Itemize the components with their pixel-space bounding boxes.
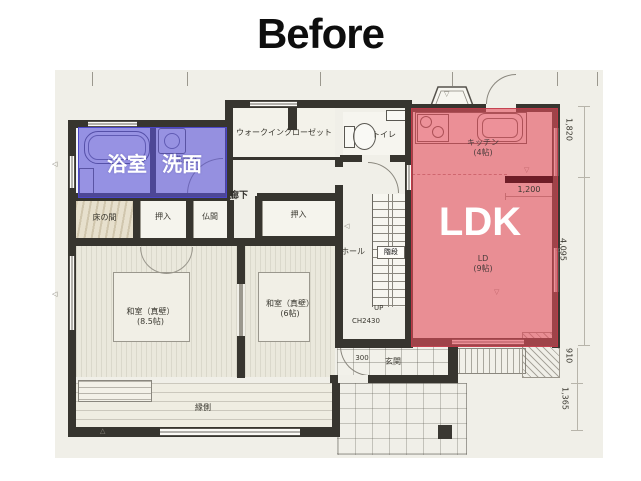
- dim-tick: [571, 383, 583, 384]
- dim-910: 910: [564, 348, 574, 363]
- grid-tick: [597, 72, 598, 86]
- window: [69, 256, 75, 330]
- dim-line: [577, 348, 578, 430]
- window: [160, 428, 300, 436]
- porch-tiles: [337, 383, 467, 455]
- label-kitchen-line2: (4帖): [455, 148, 511, 158]
- wall: [186, 200, 193, 240]
- wall: [68, 238, 343, 246]
- dim-tick: [578, 106, 590, 107]
- entry-opening: [338, 375, 368, 383]
- grid-tick: [557, 72, 558, 86]
- wall: [332, 383, 340, 437]
- label-ld: LD (9帖): [458, 254, 508, 273]
- dim-1365: 1,365: [560, 387, 570, 410]
- garden-step: [452, 348, 526, 374]
- label-dim-300: 300: [350, 354, 374, 362]
- wall-stub-dark-red: [505, 176, 553, 183]
- label-kitchen-line1: キッチン: [455, 138, 511, 148]
- marker-left-icon: ◁: [344, 222, 349, 230]
- porch-post: [438, 425, 452, 439]
- window: [250, 101, 297, 107]
- wall: [133, 200, 140, 240]
- grid-tick: [92, 72, 93, 86]
- label-washitsu-a: 和室（真壁） (8.5帖): [113, 307, 188, 326]
- engawa-step: [78, 380, 152, 402]
- page-title: Before: [0, 10, 641, 58]
- wall: [255, 196, 262, 241]
- fusuma-opening: [237, 284, 245, 336]
- label-up: UP: [374, 304, 383, 312]
- label-genkan: 玄関: [376, 357, 410, 367]
- grid-tick: [187, 72, 188, 86]
- overlay-ldk-label: LDK: [415, 200, 545, 245]
- dim-4095: 4,095: [558, 238, 568, 261]
- wall: [225, 157, 343, 160]
- label-washitsu-a-line1: 和室（真壁）: [113, 307, 188, 317]
- dim-line: [584, 106, 585, 346]
- overlay-wash-label: 洗面: [155, 148, 209, 177]
- page: Before: [0, 0, 641, 481]
- marker-left-icon: ◁: [52, 160, 57, 168]
- marker-left-icon: ◁: [52, 290, 57, 298]
- wall: [227, 200, 234, 240]
- overlay-bath-label: 浴室: [100, 148, 154, 177]
- label-washitsu-b-line1: 和室（真壁）: [245, 299, 335, 309]
- label-ld-line2: (9帖): [458, 264, 508, 274]
- dim-1820: 1,820: [564, 118, 574, 141]
- label-oshiire-b: 押入: [262, 210, 335, 220]
- label-washitsu-b: 和室（真壁） (6帖): [245, 299, 335, 318]
- label-washitsu-a-line2: (8.5帖): [113, 317, 188, 327]
- wall: [335, 339, 413, 348]
- door-opening: [362, 155, 390, 162]
- wall: [257, 193, 343, 201]
- grid-tick: [320, 72, 321, 86]
- marker-down-icon: ▽: [444, 90, 449, 98]
- label-toilet: トイレ: [364, 130, 404, 140]
- marker-up-icon: △: [100, 427, 105, 435]
- label-hall: ホール: [335, 247, 371, 257]
- label-oshiire-a: 押入: [140, 212, 186, 222]
- door-opening: [335, 167, 343, 185]
- label-butsuma: 仏間: [193, 212, 227, 222]
- dim-1200: 1,200: [506, 185, 552, 195]
- dim-tick: [578, 345, 590, 346]
- dim-tick: [571, 430, 583, 431]
- label-washitsu-b-line2: (6帖): [245, 309, 335, 319]
- dim-tick: [578, 177, 590, 178]
- window: [69, 156, 75, 188]
- label-wic: ウォークインクローゼット: [233, 128, 335, 138]
- label-tokonoma: 床の間: [76, 213, 133, 223]
- label-engawa: 縁側: [180, 403, 226, 413]
- label-stairs: 階段: [377, 246, 405, 259]
- label-hallway: 廊下: [230, 191, 248, 202]
- wall: [288, 108, 297, 130]
- label-kitchen: キッチン (4帖): [455, 138, 511, 157]
- label-ceiling-height: CH2430: [352, 317, 380, 325]
- label-ld-line1: LD: [458, 254, 508, 264]
